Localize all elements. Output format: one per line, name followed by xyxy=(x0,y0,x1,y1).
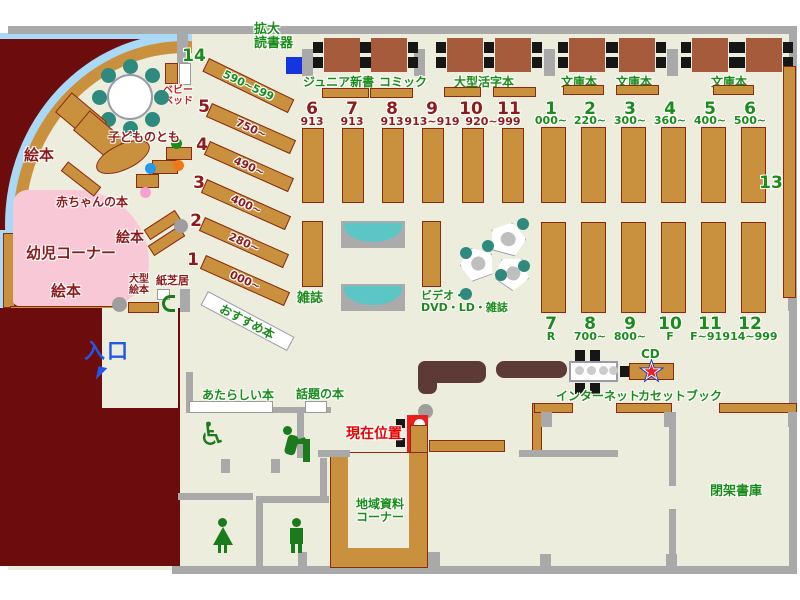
reading-table xyxy=(495,38,531,72)
shelf-range: 913~919 xyxy=(402,116,462,128)
internet-label: インターネット xyxy=(556,390,640,403)
magnifier-device xyxy=(286,57,303,74)
book-stack xyxy=(462,128,484,203)
kamishibai-label: 紙芝居 xyxy=(156,275,189,287)
baby-bed-shelf xyxy=(165,63,178,84)
av-chair xyxy=(517,218,529,230)
chairs xyxy=(558,42,568,53)
chairs xyxy=(436,42,446,53)
topic-books-shelf xyxy=(305,401,327,413)
wall-segment xyxy=(318,450,350,457)
new-books-label: あたらしい本 xyxy=(202,389,274,402)
shelf-range: 920~999 xyxy=(463,116,523,128)
service-counter xyxy=(496,361,567,378)
male-toilet-icon xyxy=(286,518,308,554)
ehon-label: 絵本 xyxy=(51,283,81,299)
wall-segment xyxy=(320,458,327,498)
reading-table xyxy=(692,38,728,72)
entrance-label: 入口 xyxy=(84,340,130,363)
reading-table xyxy=(619,38,655,72)
reading-table xyxy=(746,38,782,72)
reading-table xyxy=(447,38,483,72)
book-stack xyxy=(382,128,404,203)
chairs xyxy=(484,42,494,53)
wall-shelf xyxy=(322,88,369,98)
av-chair xyxy=(460,247,472,259)
wall-segment xyxy=(178,493,253,500)
pillar xyxy=(541,412,552,427)
pillar xyxy=(666,554,677,567)
wall-segment xyxy=(256,496,263,568)
reading-table xyxy=(569,38,605,72)
shelf-range: 000~ xyxy=(529,115,573,127)
shelf-range: 360~ xyxy=(648,115,692,127)
book-stack xyxy=(581,222,606,313)
book-stack xyxy=(342,128,364,203)
chairs xyxy=(681,42,691,53)
local-corner-label: 地域資料コーナー xyxy=(351,498,409,524)
magazine-shelf xyxy=(302,221,323,287)
bottom-wall xyxy=(172,566,797,574)
pillar xyxy=(112,297,127,312)
library-floor-map: 入口 ベビーベッド 子どものとも 絵本 赤ちゃんの本 幼児コーナー 絵本 絵本 … xyxy=(0,0,800,600)
service-counter xyxy=(418,361,437,394)
shelf-label: コミック xyxy=(379,76,427,89)
shelf-range: 914~999 xyxy=(722,331,778,343)
shelf-range: 300~ xyxy=(608,115,652,127)
book-stack xyxy=(621,127,646,203)
reading-table xyxy=(371,38,407,72)
book-stack xyxy=(661,127,686,203)
kodomo-tomo-label: 子どものとも xyxy=(108,131,180,144)
book-stack xyxy=(422,128,444,203)
new-books-shelf xyxy=(189,401,273,413)
av-chair xyxy=(518,260,530,272)
wall-shelf xyxy=(534,403,573,413)
wall-shelf xyxy=(493,87,536,97)
wall-shelf xyxy=(563,85,604,95)
book-stack xyxy=(541,222,566,313)
internet-table xyxy=(569,361,618,382)
wall-segment xyxy=(271,459,280,473)
step-shelf xyxy=(136,174,159,188)
reading-table xyxy=(324,38,360,72)
ehon-label: 絵本 xyxy=(116,231,144,246)
drinking-fountain-icon xyxy=(280,424,314,466)
book-stack xyxy=(701,127,726,203)
shelf-number: 14 xyxy=(180,47,208,65)
ehon-label: 絵本 xyxy=(24,147,54,163)
chairs xyxy=(608,42,618,53)
large-ehon-shelf xyxy=(128,302,159,313)
book-stack xyxy=(502,128,524,203)
round-table xyxy=(107,74,153,120)
wall-segment xyxy=(519,450,618,457)
wall-shelf xyxy=(444,87,481,97)
cassette-label: カセットブック xyxy=(638,390,722,403)
shelf-range: 500~ xyxy=(728,115,772,127)
internet-chairs xyxy=(575,350,585,361)
wall-shelf xyxy=(713,85,754,95)
round-table-chairs xyxy=(123,59,138,74)
book-stack xyxy=(741,222,766,313)
browsing-bench xyxy=(341,221,405,248)
av-chair xyxy=(460,288,472,300)
cd-label: CD xyxy=(641,348,660,361)
baby-bed-label: ベビーベッド xyxy=(163,86,193,108)
magnifier-label: 拡大読書器 xyxy=(254,23,293,51)
large-ehon-label: 大型絵本 xyxy=(129,275,149,297)
wall-segment xyxy=(180,289,190,312)
female-toilet-icon xyxy=(212,518,234,554)
floor-cushion-pink xyxy=(140,187,151,198)
door-swing-icon xyxy=(162,295,175,312)
chairs xyxy=(735,42,745,53)
chairs xyxy=(360,42,370,53)
av-chair xyxy=(482,240,494,252)
pillar xyxy=(302,49,313,76)
shelf-number: 13 xyxy=(757,174,785,192)
baby-bed xyxy=(179,63,191,85)
top-wall xyxy=(8,26,797,34)
wall-segment xyxy=(788,298,796,311)
book-stack xyxy=(541,127,566,203)
book-stack xyxy=(701,222,726,313)
pillar xyxy=(428,552,440,567)
shelf-range: 220~ xyxy=(568,115,612,127)
book-stack xyxy=(621,222,646,313)
pillar xyxy=(788,412,797,427)
wall-shelf xyxy=(370,88,413,98)
shelf-label: ジュニア新書 xyxy=(303,76,374,89)
topic-books-label: 話題の本 xyxy=(296,388,344,401)
baby-books-label: 赤ちゃんの本 xyxy=(56,196,128,209)
chairs xyxy=(313,42,323,53)
av-chair xyxy=(495,269,507,281)
pillar xyxy=(540,554,551,567)
wall-shelf xyxy=(616,85,659,95)
floor-cushion-orange xyxy=(173,160,184,171)
book-stack xyxy=(661,222,686,313)
current-location-label: 現在位置 xyxy=(346,427,402,442)
book-stack xyxy=(302,128,324,203)
wall-segment xyxy=(298,552,307,567)
pillar xyxy=(414,49,425,76)
wall-shelf xyxy=(719,403,797,413)
floor-cushion-blue xyxy=(145,163,156,174)
wheelchair-icon: ♿ xyxy=(198,418,227,450)
wall-segment xyxy=(221,459,230,473)
toddler-corner-label: 幼児コーナー xyxy=(26,245,116,261)
low-shelf xyxy=(429,440,505,452)
pillar xyxy=(667,49,678,76)
browsing-bench xyxy=(341,284,405,311)
pillar xyxy=(544,49,555,76)
magazine-label: 雑誌 xyxy=(297,292,323,306)
wall-segment xyxy=(256,496,329,503)
wall-segment xyxy=(669,412,676,486)
shelf-range: 400~ xyxy=(688,115,732,127)
closed-stack-label: 閉架書庫 xyxy=(710,485,762,499)
book-stack xyxy=(581,127,606,203)
av-shelf xyxy=(422,221,441,287)
